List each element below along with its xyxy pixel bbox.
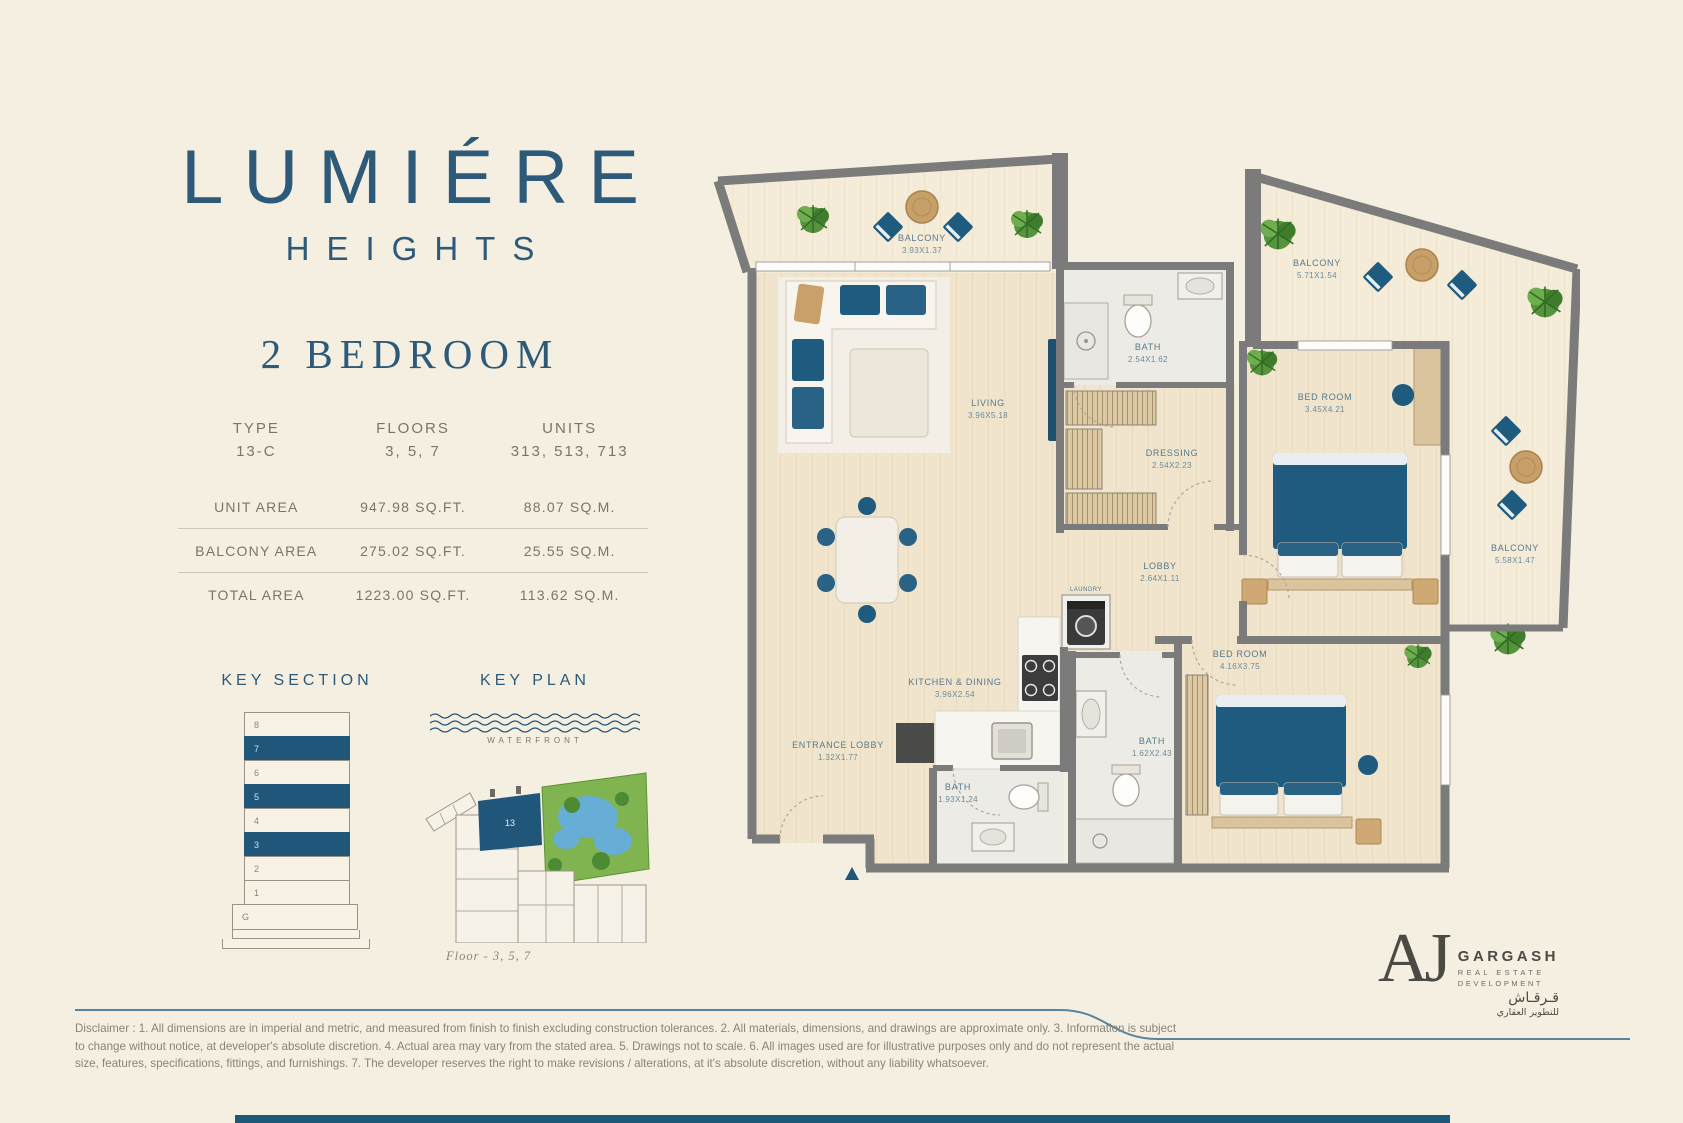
room-label-bath2: BATH [1139,736,1165,746]
spec-header-units: UNITS 313, 513, 713 [491,418,648,463]
headboard [1212,817,1352,828]
spec-table: TYPE 13-C FLOORS 3, 5, 7 UNITS 313, 513,… [178,418,648,616]
sofa-cushion [792,387,824,429]
shower [1074,819,1174,863]
developer-logo: AJ GARGASH REAL ESTATE DEVELOPMENT قـرقـ… [1378,926,1559,1018]
bed-blanket [1216,695,1346,787]
room-dims-balcony-tl: 3.93X1.37 [902,246,942,255]
waterfront-label: WATERFRONT [420,736,650,745]
spec-row-balcony-area: BALCONY AREA 275.02 SQ.FT. 25.55 SQ.M. [178,528,648,572]
balcony-area-label: BALCONY AREA [178,543,335,559]
logo-arabic-sub: للتطوير العقاري [1458,1007,1559,1018]
key-plan: KEY PLAN WATERFRONT [420,672,650,964]
tower-floor-2: 2 [244,856,350,880]
room-label-balcony-tr: BALCONY [1293,258,1341,268]
tower-floor-4: 4 [244,808,350,832]
tower-floor-ground: G [232,904,358,930]
room-label-living: LIVING [971,398,1005,408]
total-area-metric: 113.62 SQ.M. [491,587,648,603]
unit-type-heading: 2 BEDROOM [110,330,710,378]
key-plan-caption: Floor - 3, 5, 7 [446,949,650,964]
room-dims-balcony-r: 5.58X1.47 [1495,556,1535,565]
spec-header-units-value: 313, 513, 713 [491,441,648,464]
spec-header-type: TYPE 13-C [178,418,335,463]
toilet-tank [1112,765,1140,774]
spec-header-floors: FLOORS 3, 5, 7 [335,418,492,463]
unit-area-imperial: 947.98 SQ.FT. [335,499,492,515]
throw-blanket [793,283,824,324]
project-subtitle: HEIGHTS [110,230,710,268]
logo-line2: DEVELOPMENT [1458,979,1559,988]
room-dims-kitchen: 3.96X2.54 [935,690,975,699]
fridge [896,723,934,763]
floorplan-brochure-page: LUMIÉRE HEIGHTS 2 BEDROOM TYPE 13-C FLOO… [0,0,1683,1123]
logo-arabic-name: قـرقـاش [1458,990,1559,1006]
dining-chair [899,574,917,592]
wardrobe [1066,391,1156,425]
key-plan-site-map: 13 [420,753,650,943]
toilet [1125,305,1151,337]
balcony-area-imperial: 275.02 SQ.FT. [335,543,492,559]
room-dims-bedroom2: 4.16X3.75 [1220,662,1260,671]
apartment-floor-plan: BALCONY 3.93X1.37 BALCONY 5.71X1.54 BALC… [700,135,1580,880]
balcony-door [1298,341,1392,350]
unit-13-label: 13 [505,818,515,828]
tower-base [222,939,370,949]
tower-floor-8: 8 [244,712,350,736]
wall-column [1052,153,1068,269]
nightstand [1242,579,1267,604]
total-area-imperial: 1223.00 SQ.FT. [335,587,492,603]
wardrobe [1066,429,1102,489]
spec-header-floors-value: 3, 5, 7 [335,441,492,464]
room-dims-entrance-lobby: 1.32X1.77 [818,753,858,762]
wall-column [1245,169,1261,347]
room-label-bedroom2: BED ROOM [1213,649,1268,659]
wardrobe [1066,493,1156,525]
room-dims-dressing: 2.54X2.23 [1152,461,1192,470]
bottom-accent-bar [235,1115,1450,1123]
spec-header-type-value: 13-C [178,441,335,464]
dining-chair [817,528,835,546]
bedroom-chair [1392,384,1414,406]
spec-header-units-label: UNITS [491,418,648,441]
spec-header-type-label: TYPE [178,418,335,441]
wardrobe [1186,675,1208,815]
room-label-bedroom1: BED ROOM [1298,392,1353,402]
dining-chair [899,528,917,546]
project-title: LUMIÉRE [110,140,710,216]
key-section: KEY SECTION 8 7 6 5 4 3 2 1 G [212,672,382,949]
tower-floor-6: 6 [244,760,350,784]
room-dims-balcony-tr: 5.71X1.54 [1297,271,1337,280]
disclaimer-text: Disclaimer : 1. All dimensions are in im… [75,1020,1180,1073]
logo-monogram: AJ [1378,926,1448,993]
room-dims-living: 3.96X5.18 [968,411,1008,420]
tower-pedestal [232,930,360,939]
spec-row-unit-area: UNIT AREA 947.98 SQ.FT. 88.07 SQ.M. [178,485,648,528]
key-plan-title: KEY PLAN [420,672,650,690]
room-dims-lobby: 2.64X1.11 [1140,574,1180,583]
room-label-lobby: LOBBY [1143,561,1177,571]
tower-floor-7-highlighted: 7 [244,736,350,760]
room-label-dressing: DRESSING [1146,448,1199,458]
logo-line1: REAL ESTATE [1458,968,1559,977]
window-band [1441,455,1450,555]
room-label-entrance-lobby: ENTRANCE LOBBY [792,740,884,750]
nightstand [1413,579,1438,604]
room-dims-bath1: 2.54X1.62 [1128,355,1168,364]
spec-row-total-area: TOTAL AREA 1223.00 SQ.FT. 113.62 SQ.M. [178,572,648,616]
dresser [1414,347,1441,445]
key-section-tower-diagram: 8 7 6 5 4 3 2 1 G [244,712,350,949]
spec-header-row: TYPE 13-C FLOORS 3, 5, 7 UNITS 313, 513,… [178,418,648,463]
bed-blanket [1273,453,1407,549]
nightstand [1356,819,1381,844]
key-section-title: KEY SECTION [212,672,382,690]
room-label-kitchen: KITCHEN & DINING [908,677,1001,687]
sofa-cushion [886,285,926,315]
sofa-cushion [840,285,880,315]
dining-chair [858,497,876,515]
dining-table [836,517,898,603]
room-label-laundry: LAUNDRY [1070,587,1102,593]
window-band [756,262,1050,271]
room-dims-bedroom1: 3.45X4.21 [1305,405,1345,414]
toilet [1113,774,1139,806]
room-label-balcony-r: BALCONY [1491,543,1539,553]
total-area-label: TOTAL AREA [178,587,335,603]
tower-floor-3-highlighted: 3 [244,832,350,856]
coffee-table [850,349,928,437]
room-label-balcony-tl: BALCONY [898,233,946,243]
dining-chair [858,605,876,623]
bedroom-chair [1358,755,1378,775]
room-label-bath1: BATH [1135,342,1161,352]
sofa-cushion [792,339,824,381]
logo-name: GARGASH [1458,948,1559,965]
room-dims-bath3: 1.93X1.24 [938,795,978,804]
project-brand: LUMIÉRE HEIGHTS [110,140,710,268]
waterfront-waves-icon [430,712,640,734]
unit-area-metric: 88.07 SQ.M. [491,499,648,515]
room-label-bath3: BATH [945,782,971,792]
toilet-tank [1124,295,1152,305]
headboard [1268,579,1412,590]
balcony-area-metric: 25.55 SQ.M. [491,543,648,559]
dining-chair [817,574,835,592]
room-dims-bath2: 1.62X2.43 [1132,749,1172,758]
unit-area-label: UNIT AREA [178,499,335,515]
tower-floor-1: 1 [244,880,350,904]
toilet [1009,785,1039,809]
window-band [1441,695,1450,785]
tower-floor-5-highlighted: 5 [244,784,350,808]
spec-header-floors-label: FLOORS [335,418,492,441]
